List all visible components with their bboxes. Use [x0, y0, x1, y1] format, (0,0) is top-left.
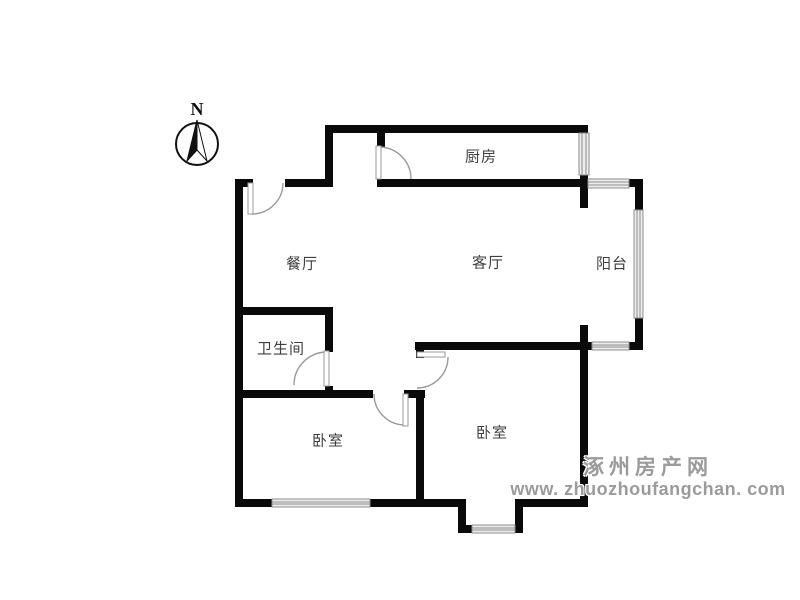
room-label-bathroom: 卫生间 [257, 338, 305, 359]
room-label-kitchen: 厨房 [465, 146, 497, 167]
wall-balcony-right-upper [635, 179, 643, 210]
room-label-bedroom-right: 卧室 [476, 422, 508, 443]
wall-left-exterior [235, 179, 243, 507]
window-balcony-top [588, 179, 629, 188]
compass: N [176, 99, 218, 165]
wall-bottom-right [523, 499, 588, 507]
door-bedroom-right [417, 352, 448, 388]
wall-bedroom-divider [416, 390, 424, 507]
wall-kitchen-right [580, 175, 588, 208]
door-entry [248, 183, 283, 214]
wall-bathroom-top [243, 307, 333, 315]
wall-living-bottom [415, 342, 592, 350]
floor-plan-page: N 厨房 餐厅 客厅 阳台 卫生间 卧室 卧室 涿州房产网 www. zhuoz… [0, 0, 800, 600]
window-kitchen-right [579, 133, 589, 175]
room-label-bedroom-left: 卧室 [312, 430, 344, 451]
compass-needle-outline-icon [197, 120, 207, 161]
wall-balcony-bottom-corner [629, 342, 643, 350]
wall-bathroom-right-upper [325, 307, 333, 352]
wall-entry-right [285, 179, 333, 187]
wall-top [325, 125, 588, 133]
window-bay [472, 525, 515, 533]
wall-bedroom-left-top [235, 390, 373, 398]
window-bedroom-left [272, 499, 370, 507]
wall-kitchen-bottom [377, 179, 588, 187]
compass-needle-icon [187, 120, 197, 161]
window-balcony-bottom [592, 342, 629, 350]
room-label-living: 客厅 [472, 252, 504, 273]
compass-north-label: N [191, 99, 204, 119]
window-balcony-right [634, 210, 643, 318]
wall-bay-right [515, 499, 523, 533]
watermark-site-url: www. zhuozhoufangchan. com [478, 480, 800, 500]
room-label-dining: 餐厅 [286, 253, 318, 274]
door-bedroom-left [374, 394, 408, 426]
door-kitchen [376, 146, 411, 179]
wall-kitchen-stub [377, 133, 385, 147]
watermark-site-name: 涿州房产网 [478, 456, 800, 479]
watermark: 涿州房产网 www. zhuozhoufangchan. com [478, 456, 800, 500]
room-label-balcony: 阳台 [596, 253, 628, 274]
wall-top-left-vertical [325, 125, 333, 187]
floor-plan-canvas: N [0, 0, 800, 600]
doors [248, 146, 448, 426]
